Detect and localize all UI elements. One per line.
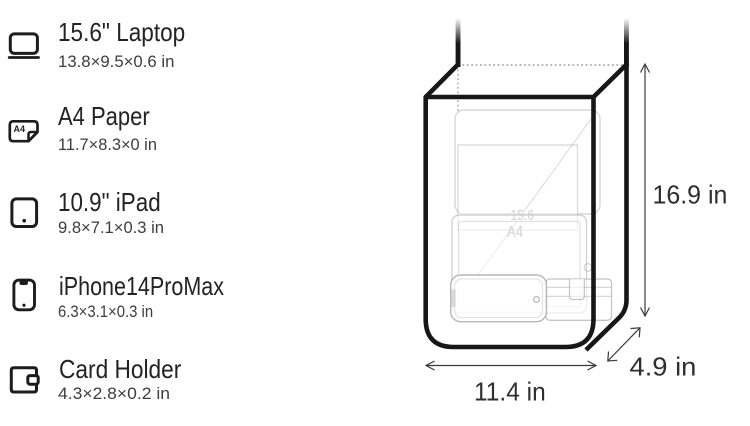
- svg-text:A4: A4: [507, 224, 523, 241]
- svg-text:A4: A4: [14, 124, 26, 134]
- svg-text:11.4 in: 11.4 in: [474, 376, 546, 406]
- svg-text:16.9 in: 16.9 in: [653, 180, 728, 210]
- svg-text:4.9 in: 4.9 in: [630, 352, 697, 382]
- svg-text:15.6: 15.6: [511, 207, 535, 224]
